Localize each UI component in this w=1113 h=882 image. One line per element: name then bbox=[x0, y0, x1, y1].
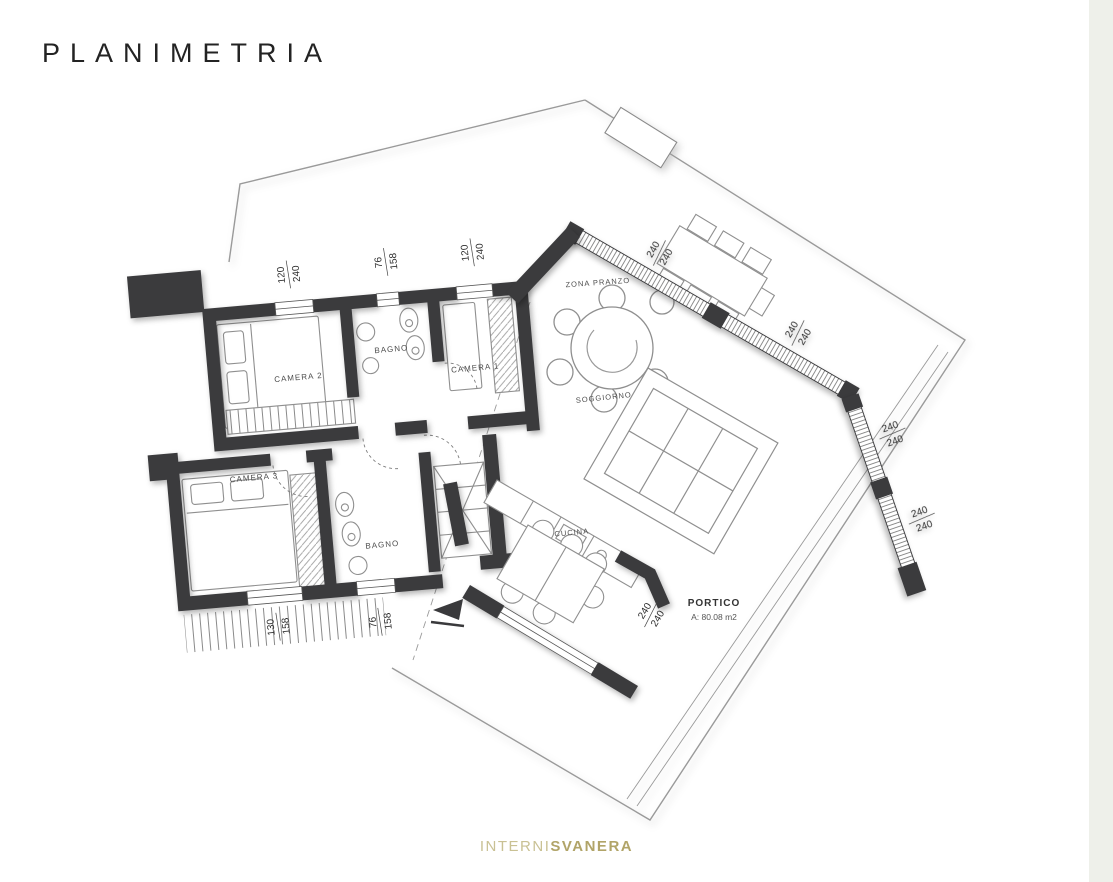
dim-value: 240 bbox=[474, 242, 486, 260]
room-label-portico: PORTICO A: 80.08 m2 bbox=[688, 598, 741, 622]
portico-title: PORTICO bbox=[688, 598, 741, 609]
sink-icon bbox=[362, 357, 379, 374]
brand-bold: SVANERA bbox=[550, 838, 633, 855]
portico-area: A: 80.08 m2 bbox=[691, 612, 737, 622]
dim-value: 76 bbox=[373, 256, 385, 268]
bed-icon bbox=[443, 302, 482, 390]
dim-value: 240 bbox=[881, 419, 901, 435]
dim-value: 130 bbox=[265, 618, 277, 636]
toilet-icon bbox=[335, 491, 362, 547]
dimension-label: 120 240 bbox=[459, 237, 487, 267]
dim-value: 158 bbox=[280, 617, 292, 635]
wardrobe-icon bbox=[487, 297, 519, 393]
bedroom-wing: CAMERA 2 BAGNO CAMERA 1 CAMERA 3 BAGNO 1… bbox=[126, 234, 556, 655]
room-label-bagno-1: BAGNO bbox=[374, 343, 409, 355]
sink-icon bbox=[356, 322, 376, 342]
dim-value: 240 bbox=[649, 609, 667, 629]
dim-value: 158 bbox=[388, 252, 400, 270]
terrace-bench bbox=[605, 107, 677, 167]
room-label-zona-pranzo: ZONA PRANZO bbox=[565, 276, 630, 289]
dimension-label: 240 240 bbox=[905, 503, 940, 537]
dim-value: 158 bbox=[382, 612, 394, 630]
dim-value: 120 bbox=[276, 266, 288, 284]
room-label-bagno-2: BAGNO bbox=[365, 539, 400, 551]
glass-wall-east: 240 240 240 240 bbox=[840, 383, 958, 597]
dim-value: 76 bbox=[368, 616, 380, 628]
entrance-arrow-icon bbox=[431, 599, 464, 626]
dimension-label: 120 240 bbox=[275, 259, 303, 289]
dim-value: 120 bbox=[459, 244, 471, 262]
dim-value: 240 bbox=[910, 504, 930, 520]
bed-icon bbox=[182, 470, 297, 591]
dimension-label: 240 240 bbox=[781, 315, 818, 352]
floor-plan-svg: CAMERA 2 BAGNO CAMERA 1 CAMERA 3 BAGNO 1… bbox=[0, 0, 1113, 882]
brand-light: INTERNI bbox=[480, 838, 551, 855]
dim-value: 240 bbox=[915, 519, 935, 535]
sink-icon bbox=[348, 556, 368, 576]
boundary-left-edge bbox=[229, 100, 585, 262]
brand-footer: INTERNISVANERA bbox=[0, 838, 1113, 855]
dimension-label: 240 240 bbox=[875, 418, 910, 452]
dimension-label: 76 158 bbox=[372, 247, 400, 277]
dim-value: 240 bbox=[291, 264, 303, 282]
living-wing: 240 240 240 240 240 240 240 bbox=[431, 194, 957, 698]
